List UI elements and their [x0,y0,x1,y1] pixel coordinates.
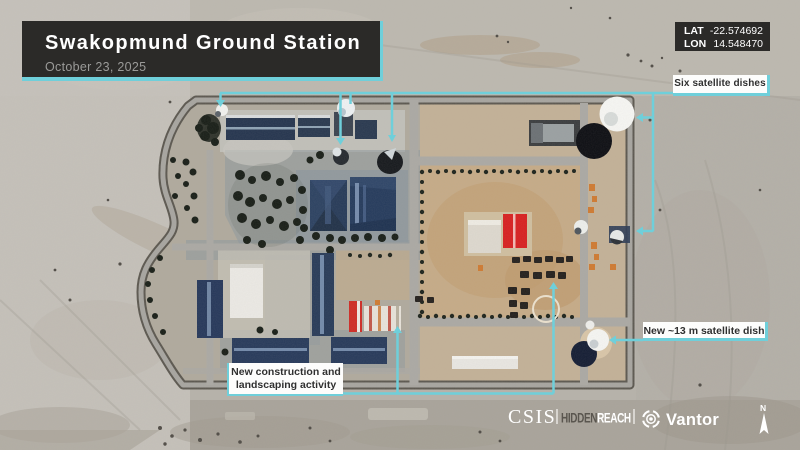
svg-text:Vantor: Vantor [666,411,719,429]
